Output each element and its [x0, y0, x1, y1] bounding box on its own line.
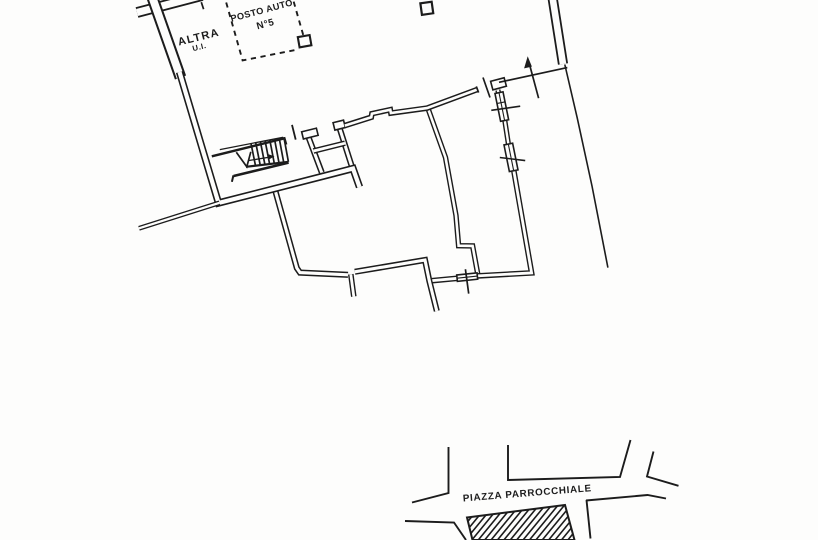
svg-text:U.I.: U.I.: [191, 41, 207, 53]
svg-text:PIAZZA PARROCCHIALE: PIAZZA PARROCCHIALE: [462, 483, 592, 504]
svg-text:N°5: N°5: [255, 17, 275, 32]
